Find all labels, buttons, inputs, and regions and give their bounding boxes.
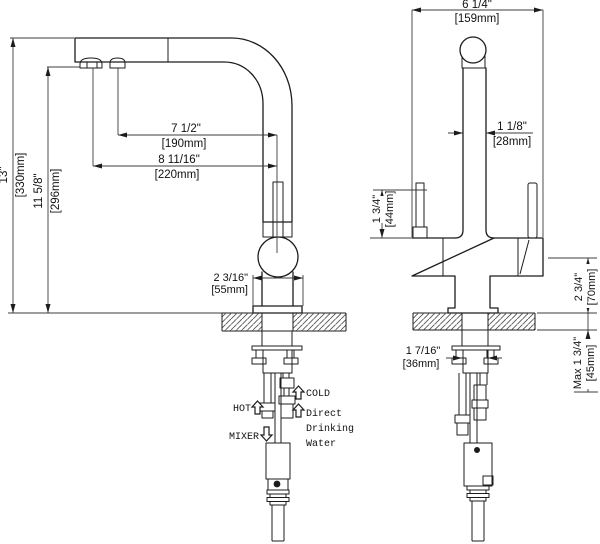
- dim-base-width-mm: [55mm]: [211, 284, 248, 296]
- aerator-bump-1: [80, 58, 102, 68]
- mounting-hardware-front: [452, 330, 500, 373]
- direct-label-line3: Water: [306, 439, 336, 450]
- dim-handle-clearance-mm: [70mm]: [586, 269, 598, 306]
- direct-label-line1: Direct: [306, 408, 342, 420]
- supply-hoses-front: [455, 373, 488, 443]
- pullout-rod: [273, 182, 283, 237]
- spout-tube-front: [455, 68, 494, 238]
- base-flange: [253, 306, 302, 313]
- mixer-down-arrow-icon: [261, 427, 272, 441]
- mixer-label: MIXER: [229, 432, 259, 443]
- dim-height-to-spout-mm: [296mm]: [50, 169, 62, 214]
- body-front-outline: [412, 238, 543, 313]
- dim-spout-tube-width-mm: [28mm]: [493, 136, 531, 148]
- handle-lever-line: [520, 240, 529, 274]
- dim-spout-reach-inner: 7 1/2" [190mm]: [118, 123, 277, 150]
- dim-overall-width-in: 6 1/4": [462, 0, 492, 11]
- outlet-rod-tab: [413, 227, 427, 238]
- spray-head-circle: [460, 37, 486, 63]
- hose-connector-front: [464, 443, 493, 541]
- direct-label-line2: Drinking: [306, 423, 354, 435]
- valve-body-circle: [258, 237, 298, 277]
- dim-base-width-in: 2 3/16": [214, 272, 249, 284]
- dim-spout-reach-outer: 8 11/16" [220mm]: [93, 154, 277, 181]
- aerator-bump-1-inner: [87, 62, 97, 68]
- dim-height-to-spout: 11 5/8" [296mm]: [33, 67, 62, 313]
- aerator-bump-2: [110, 58, 125, 68]
- dim-overall-width-mm: [159mm]: [455, 13, 500, 25]
- spray-head-holder: [462, 56, 485, 68]
- dim-spout-reach-outer-mm: [220mm]: [155, 169, 200, 181]
- dim-base-width: 2 3/16" [55mm]: [211, 272, 303, 296]
- riser-joint: [263, 222, 292, 237]
- dim-spout-tube-width: 1 1/8" [28mm]: [448, 121, 533, 148]
- dim-shank-width-in: 1 7/16": [406, 345, 441, 357]
- dim-overall-width: 6 1/4" [159mm]: [412, 0, 543, 237]
- dim-outlet-height-mm: [44mm]: [384, 191, 396, 228]
- handle-rod: [528, 183, 537, 238]
- dim-handle-clearance: 2 3/4" [70mm]: [537, 258, 599, 330]
- drawing-canvas: 13" [330mm] 11 5/8" [296mm] 7 1/2" [190m…: [0, 0, 600, 544]
- dim-shank-width-mm: [36mm]: [403, 358, 440, 370]
- dim-outlet-height-in: 1 3/4": [371, 195, 383, 223]
- dim-overall-height-in: 13": [0, 167, 10, 184]
- dim-spout-reach-inner-mm: [190mm]: [162, 138, 207, 150]
- dim-overall-height-mm: [330mm]: [15, 153, 27, 198]
- direct-up-arrow-icon: [293, 404, 304, 417]
- hot-label: HOT: [233, 404, 251, 415]
- faucet-technical-drawing: 13" [330mm] 11 5/8" [296mm] 7 1/2" [190m…: [0, 0, 600, 544]
- dim-max-deck-thickness: Max 1 3/4" [45mm]: [571, 313, 598, 392]
- dim-max-deck-thickness-mm: [45mm]: [585, 345, 597, 382]
- countertop-side: [222, 313, 346, 331]
- dim-height-to-spout-in: 11 5/8": [33, 173, 45, 208]
- dim-spout-tube-width-in: 1 1/8": [497, 121, 527, 133]
- front-view: [412, 37, 543, 541]
- hose-connector-side: [266, 443, 290, 541]
- dim-spout-reach-outer-in: 8 11/16": [158, 154, 200, 166]
- dim-outlet-height: 1 3/4" [44mm]: [370, 190, 427, 238]
- dim-max-deck-thickness-in: Max 1 3/4": [572, 337, 584, 389]
- dim-overall-height: 13" [330mm]: [0, 38, 27, 313]
- dim-handle-clearance-in: 2 3/4": [573, 273, 585, 301]
- cold-label: COLD: [306, 389, 330, 400]
- side-view-dimensions: 13" [330mm] 11 5/8" [296mm] 7 1/2" [190m…: [0, 38, 303, 313]
- dim-spout-reach-inner-in: 7 1/2": [171, 123, 201, 135]
- countertop-front: [413, 313, 535, 330]
- mounting-hardware-side: [252, 331, 302, 373]
